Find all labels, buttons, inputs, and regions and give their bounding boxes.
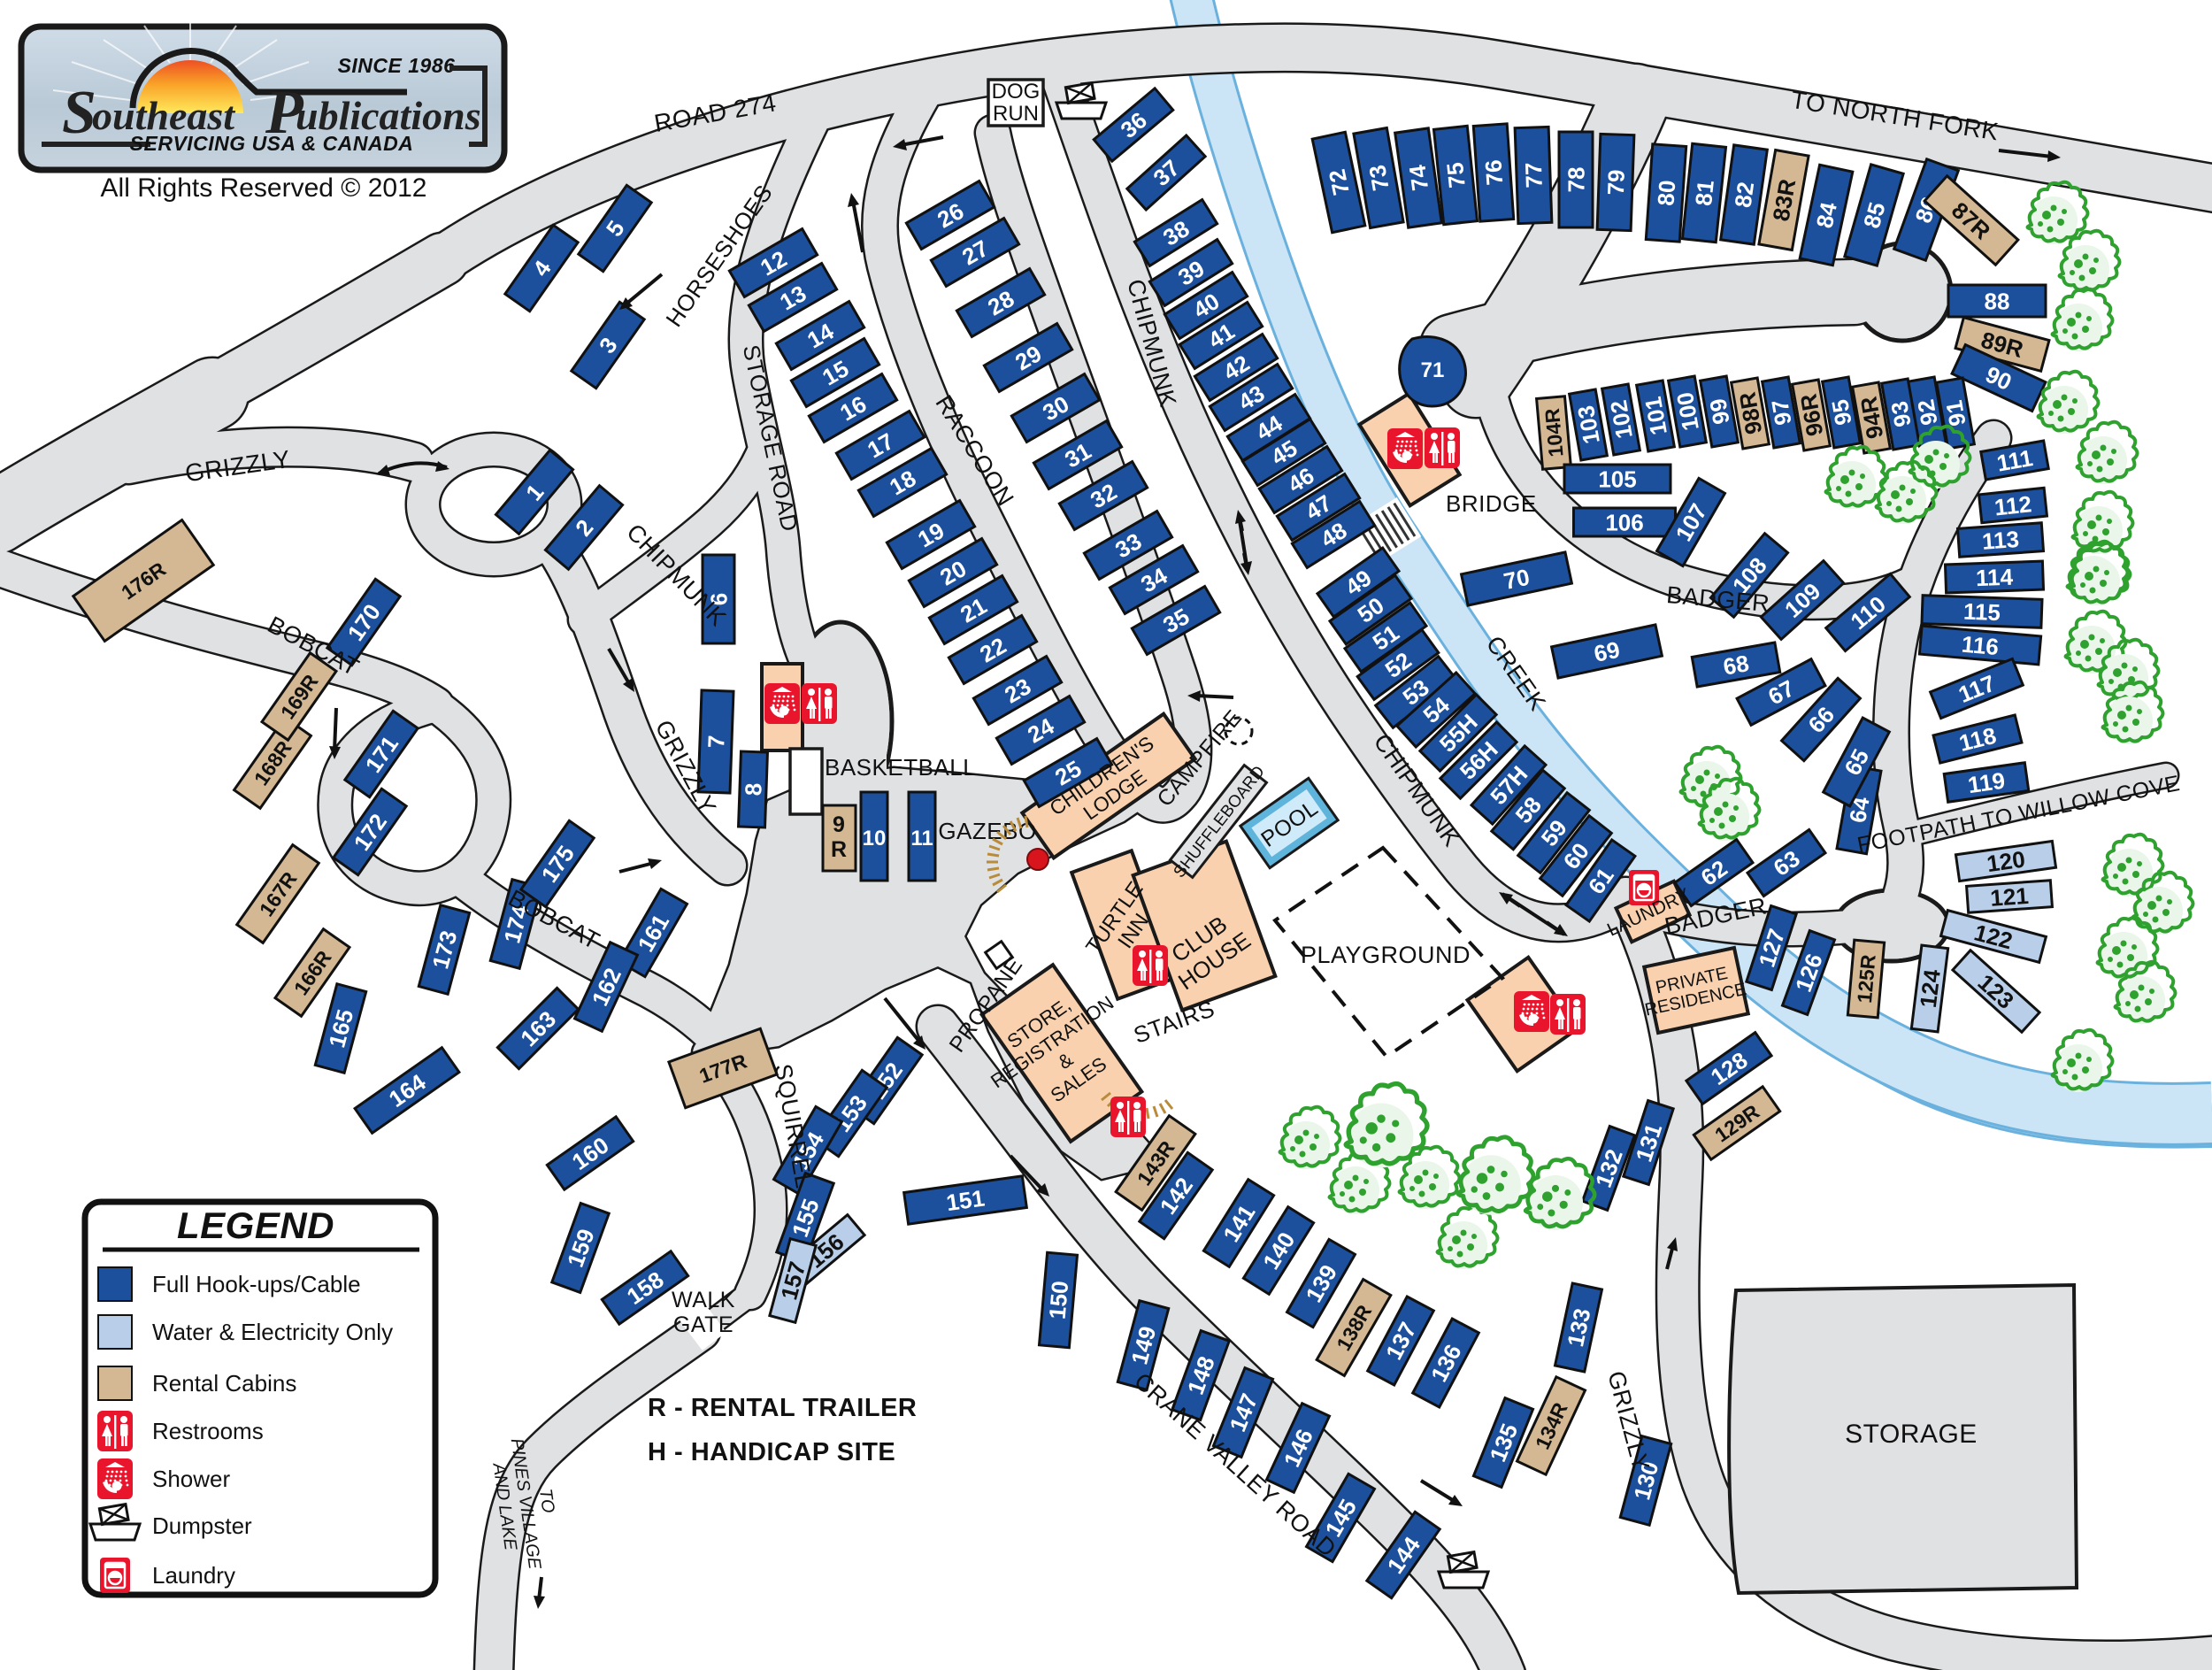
svg-text:72: 72 xyxy=(1324,167,1355,198)
svg-text:Restrooms: Restrooms xyxy=(152,1418,264,1444)
svg-text:74: 74 xyxy=(1403,163,1433,192)
svg-text:91: 91 xyxy=(1940,398,1971,428)
svg-text:Shower: Shower xyxy=(152,1466,230,1492)
svg-text:105: 105 xyxy=(1598,466,1636,492)
svg-text:75: 75 xyxy=(1441,161,1471,189)
svg-text:8: 8 xyxy=(740,782,766,797)
svg-text:82: 82 xyxy=(1729,181,1759,210)
svg-text:R: R xyxy=(831,837,847,862)
svg-text:GATE: GATE xyxy=(673,1312,733,1337)
svg-text:Full Hook-ups/Cable: Full Hook-ups/Cable xyxy=(152,1271,361,1297)
svg-text:151: 151 xyxy=(944,1184,986,1216)
svg-text:LEGEND: LEGEND xyxy=(177,1204,334,1246)
svg-text:124: 124 xyxy=(1915,967,1946,1009)
svg-text:RUN: RUN xyxy=(993,102,1039,126)
svg-text:Dumpster: Dumpster xyxy=(152,1512,252,1539)
svg-text:SINCE 1986: SINCE 1986 xyxy=(338,54,456,77)
svg-text:106: 106 xyxy=(1605,509,1643,535)
svg-text:150: 150 xyxy=(1044,1280,1074,1320)
svg-text:113: 113 xyxy=(1981,526,2020,555)
svg-text:STORAGE: STORAGE xyxy=(1845,1420,1978,1449)
svg-text:95: 95 xyxy=(1826,397,1857,427)
svg-text:77: 77 xyxy=(1520,162,1548,189)
svg-text:DOG: DOG xyxy=(992,80,1041,104)
svg-text:73: 73 xyxy=(1363,163,1394,193)
svg-text:WALK: WALK xyxy=(672,1288,735,1312)
svg-text:Water & Electricity Only: Water & Electricity Only xyxy=(152,1319,393,1345)
svg-text:97: 97 xyxy=(1766,397,1797,427)
svg-text:119: 119 xyxy=(1966,767,2007,799)
svg-text:79: 79 xyxy=(1602,169,1630,196)
svg-text:78: 78 xyxy=(1563,167,1589,193)
svg-text:116: 116 xyxy=(1961,631,2000,661)
svg-text:93: 93 xyxy=(1886,399,1916,429)
svg-text:7: 7 xyxy=(703,735,729,749)
svg-text:10: 10 xyxy=(863,827,887,850)
svg-text:69: 69 xyxy=(1592,636,1623,667)
svg-text:121: 121 xyxy=(1989,882,2029,912)
svg-text:68: 68 xyxy=(1721,650,1751,681)
svg-text:BRIDGE: BRIDGE xyxy=(1446,490,1537,517)
svg-text:114: 114 xyxy=(1976,564,2015,591)
svg-text:Rental Cabins: Rental Cabins xyxy=(152,1370,296,1397)
svg-text:88: 88 xyxy=(1985,288,2010,314)
svg-text:9: 9 xyxy=(833,812,845,837)
svg-text:76: 76 xyxy=(1479,159,1508,187)
svg-text:112: 112 xyxy=(1993,490,2033,520)
svg-text:Laundry: Laundry xyxy=(152,1562,235,1589)
svg-text:70: 70 xyxy=(1502,564,1532,595)
svg-text:115: 115 xyxy=(1963,598,2001,626)
svg-text:SERVICING USA & CANADA: SERVICING USA & CANADA xyxy=(130,132,414,155)
svg-text:BASKETBALL: BASKETBALL xyxy=(825,754,976,781)
svg-text:H - HANDICAP SITE: H - HANDICAP SITE xyxy=(648,1438,895,1466)
svg-text:120: 120 xyxy=(1985,845,2026,877)
svg-text:GAZEBO: GAZEBO xyxy=(938,818,1036,844)
svg-text:11: 11 xyxy=(910,827,933,850)
svg-text:PLAYGROUND: PLAYGROUND xyxy=(1301,942,1471,968)
svg-text:99: 99 xyxy=(1704,396,1735,427)
svg-text:104R: 104R xyxy=(1540,407,1568,458)
svg-text:R - RENTAL TRAILER: R - RENTAL TRAILER xyxy=(648,1394,917,1422)
svg-text:71: 71 xyxy=(1421,358,1445,382)
svg-text:80: 80 xyxy=(1652,180,1680,207)
svg-text:All Rights Reserved © 2012: All Rights Reserved © 2012 xyxy=(101,173,427,203)
svg-text:125R: 125R xyxy=(1853,953,1880,1004)
svg-text:81: 81 xyxy=(1690,179,1719,207)
svg-text:TO: TO xyxy=(535,1488,558,1514)
